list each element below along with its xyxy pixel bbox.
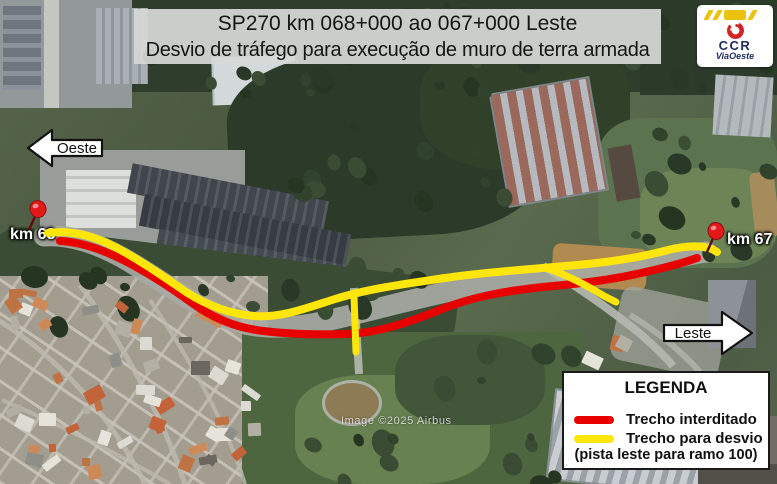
detour-branch-overpass [354,297,356,352]
km-68-pin-icon [28,199,48,230]
routes-layer [0,0,777,484]
traffic-detour-map: km 68 km 67 SP270 km 068+000 ao 067+000 … [0,0,777,484]
